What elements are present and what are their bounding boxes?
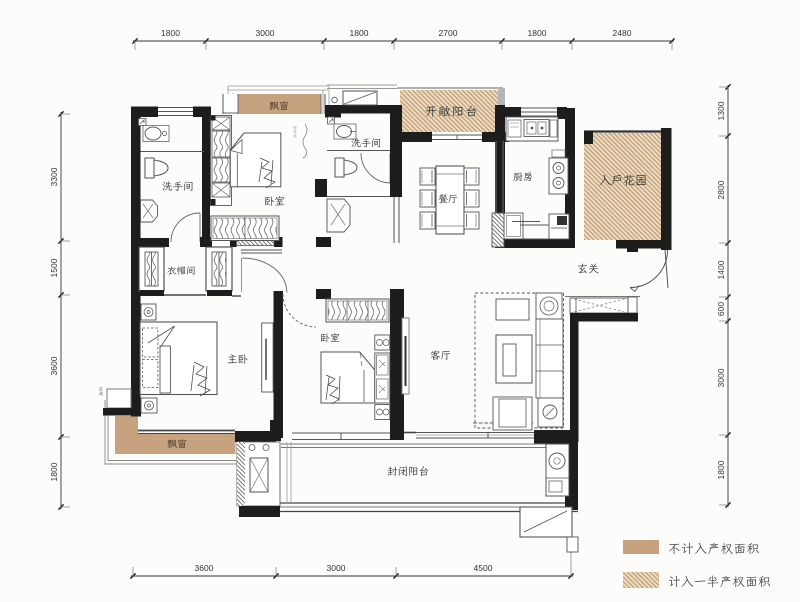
svg-text:1300: 1300 [716,101,726,120]
svg-text:3000: 3000 [256,28,275,38]
svg-text:1800: 1800 [161,28,180,38]
svg-text:1800: 1800 [350,28,369,38]
svg-text:1800: 1800 [528,28,547,38]
svg-text:1400: 1400 [716,260,726,279]
svg-text:2800: 2800 [716,180,726,199]
svg-text:3300: 3300 [49,167,59,186]
svg-text:1800: 1800 [716,460,726,479]
svg-text:3600: 3600 [195,563,214,573]
svg-text:600: 600 [716,302,726,316]
svg-text:1800: 1800 [49,462,59,481]
svg-text:3000: 3000 [716,368,726,387]
svg-text:4500: 4500 [474,563,493,573]
svg-text:2480: 2480 [613,28,632,38]
svg-text:3000: 3000 [327,563,346,573]
svg-text:2700: 2700 [439,28,458,38]
svg-text:3600: 3600 [49,356,59,375]
svg-text:1500: 1500 [49,258,59,277]
